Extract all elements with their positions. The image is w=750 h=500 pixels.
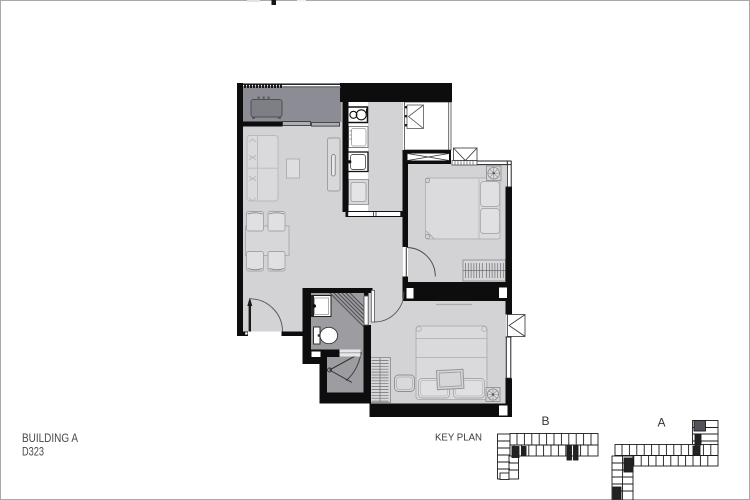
svg-text:D323: D323 — [22, 447, 44, 459]
svg-text:A: A — [658, 416, 666, 430]
svg-text:BUILDING A: BUILDING A — [22, 433, 78, 445]
svg-text:KEY PLAN: KEY PLAN — [435, 432, 482, 444]
svg-text:B: B — [542, 414, 550, 428]
